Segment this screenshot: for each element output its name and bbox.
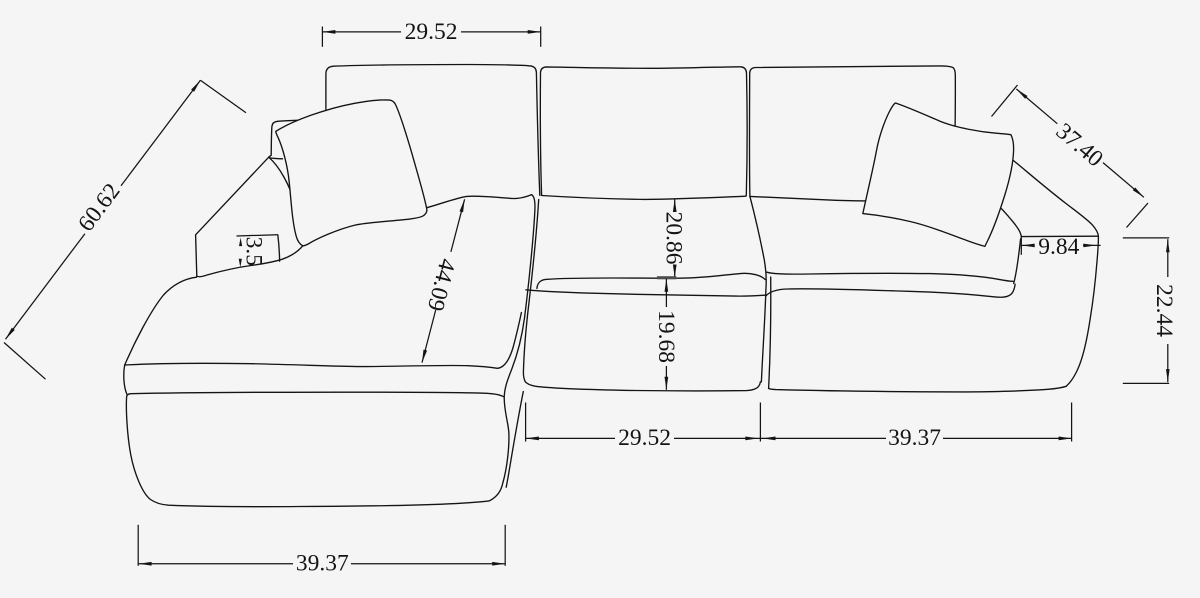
svg-text:37.40: 37.40	[1051, 118, 1108, 172]
svg-text:20.86: 20.86	[661, 212, 687, 265]
svg-text:60.62: 60.62	[73, 179, 125, 237]
svg-text:44.09: 44.09	[422, 256, 460, 314]
svg-text:3.5: 3.5	[240, 237, 266, 266]
svg-text:39.37: 39.37	[296, 550, 349, 576]
svg-text:22.44: 22.44	[1151, 284, 1177, 337]
svg-text:19.68: 19.68	[653, 310, 679, 363]
svg-text:39.37: 39.37	[888, 425, 941, 451]
svg-text:9.84: 9.84	[1038, 234, 1079, 260]
svg-text:29.52: 29.52	[405, 19, 458, 45]
svg-text:29.52: 29.52	[618, 425, 671, 451]
